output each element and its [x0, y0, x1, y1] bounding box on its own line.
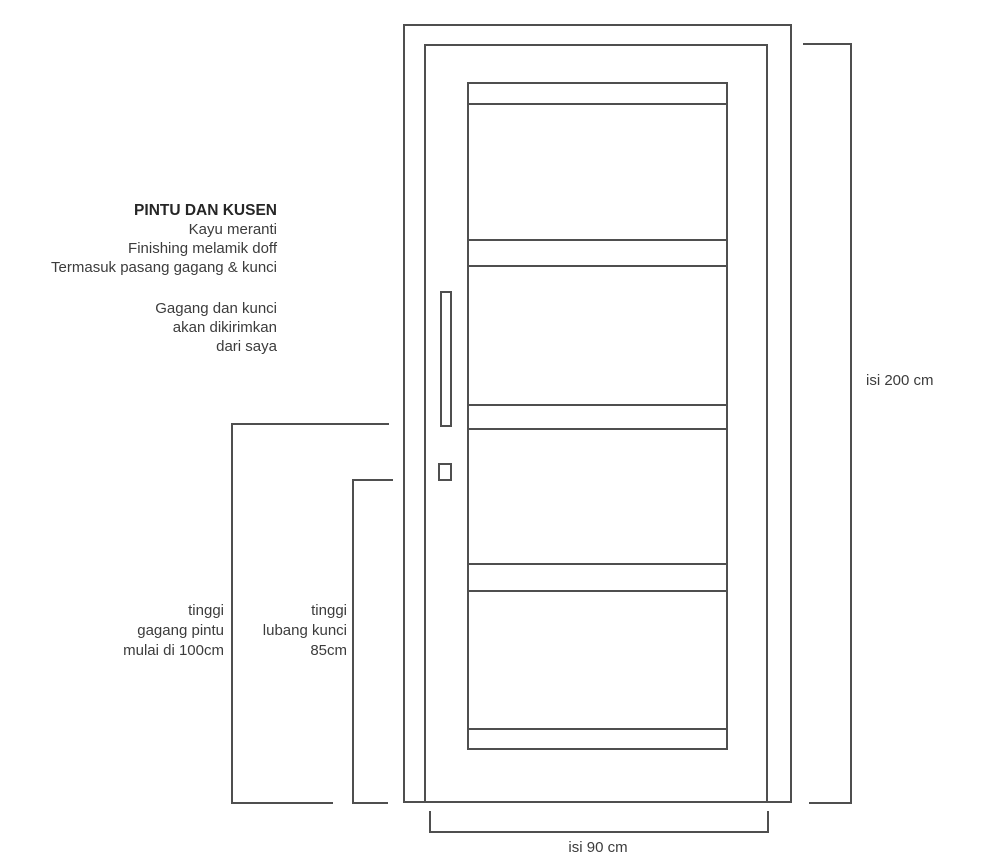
- door-panel-area: [467, 82, 728, 750]
- panel-divider-8: [468, 728, 727, 730]
- dim-width-line: [429, 831, 769, 833]
- dim-handle-label-line-3: mulai di 100cm: [123, 641, 224, 661]
- dim-height-top-tick: [803, 43, 852, 45]
- door-keyhole: [438, 463, 452, 481]
- dim-handle-top-tick: [231, 423, 389, 425]
- dim-handle-line: [231, 423, 233, 804]
- dim-width-left-tick: [429, 811, 431, 833]
- dim-height-bottom-tick: [809, 802, 852, 804]
- dim-height-line: [850, 43, 852, 804]
- spec-note-2: akan dikirimkan: [51, 318, 277, 337]
- spec-note-1: Gagang dan kunci: [51, 299, 277, 318]
- spec-includes: Termasuk pasang gagang & kunci: [51, 258, 277, 277]
- spec-spacer: [51, 277, 277, 299]
- dim-width-right-tick: [767, 811, 769, 833]
- dim-width-label: isi 90 cm: [448, 838, 748, 858]
- panel-divider-5: [468, 428, 727, 430]
- door-kusen-diagram: PINTU DAN KUSEN Kayu meranti Finishing m…: [0, 0, 1000, 863]
- dim-height-label: isi 200 cm: [866, 371, 934, 391]
- panel-divider-4: [468, 404, 727, 406]
- dim-handle-label-line-1: tinggi: [123, 601, 224, 621]
- panel-divider-6: [468, 563, 727, 565]
- panel-divider-3: [468, 265, 727, 267]
- dim-keyhole-label: tinggi lubang kunci 85cm: [263, 601, 347, 661]
- dim-keyhole-line: [352, 479, 354, 804]
- panel-divider-1: [468, 103, 727, 105]
- spec-material: Kayu meranti: [51, 220, 277, 239]
- spec-block: PINTU DAN KUSEN Kayu meranti Finishing m…: [51, 201, 277, 356]
- spec-title: PINTU DAN KUSEN: [51, 201, 277, 220]
- door-handle: [440, 291, 452, 427]
- dim-handle-bottom-tick: [231, 802, 333, 804]
- dim-handle-label: tinggi gagang pintu mulai di 100cm: [123, 601, 224, 661]
- spec-finishing: Finishing melamik doff: [51, 239, 277, 258]
- dim-keyhole-label-line-1: tinggi: [263, 601, 347, 621]
- panel-divider-2: [468, 239, 727, 241]
- dim-keyhole-label-line-2: lubang kunci: [263, 621, 347, 641]
- panel-divider-7: [468, 590, 727, 592]
- dim-keyhole-bottom-tick: [352, 802, 388, 804]
- dim-keyhole-top-tick: [352, 479, 393, 481]
- dim-handle-label-line-2: gagang pintu: [123, 621, 224, 641]
- dim-keyhole-label-line-3: 85cm: [263, 641, 347, 661]
- spec-note-3: dari saya: [51, 337, 277, 356]
